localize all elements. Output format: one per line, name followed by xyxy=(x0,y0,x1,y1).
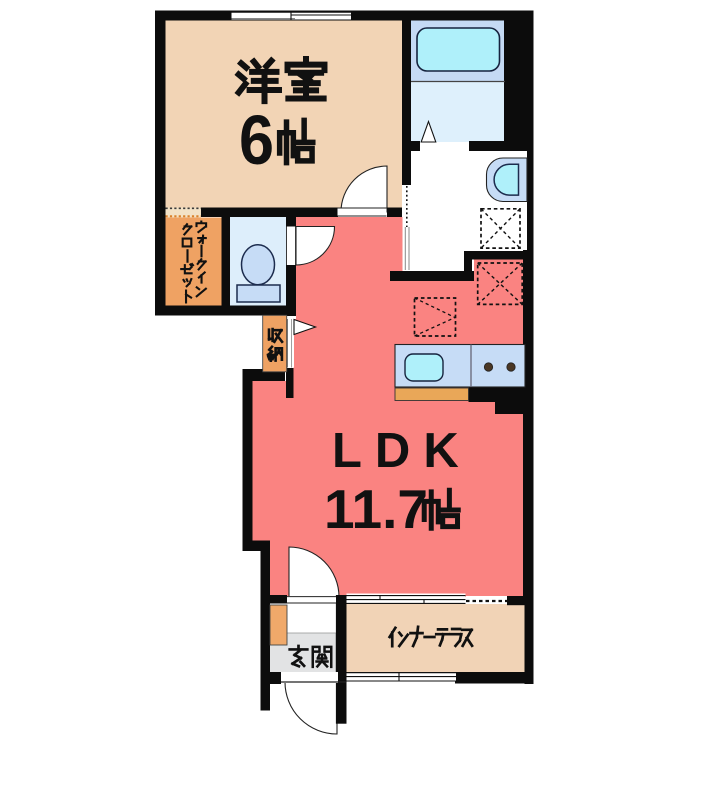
svg-text:11.7: 11.7 xyxy=(324,478,428,540)
svg-text:6: 6 xyxy=(239,102,274,180)
svg-text:LDK: LDK xyxy=(332,424,472,478)
